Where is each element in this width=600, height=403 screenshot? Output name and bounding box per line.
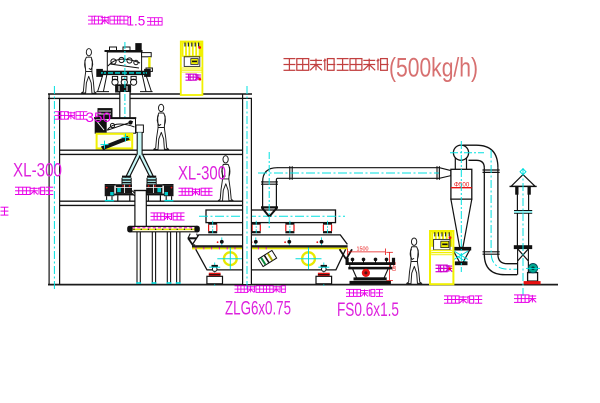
svg-text:XL-300: XL-300	[178, 163, 226, 185]
svg-text:ZLG6x0.75: ZLG6x0.75	[225, 299, 291, 320]
svg-text:350: 350	[86, 109, 112, 125]
svg-text:Φ500: Φ500	[454, 181, 470, 188]
svg-text:1.5: 1.5	[127, 14, 146, 29]
svg-text:FS0.6x1.5: FS0.6x1.5	[337, 300, 399, 321]
svg-text:XL-300: XL-300	[13, 160, 62, 182]
svg-text:(500kg/h): (500kg/h)	[389, 53, 478, 83]
svg-text:1500: 1500	[357, 247, 369, 253]
